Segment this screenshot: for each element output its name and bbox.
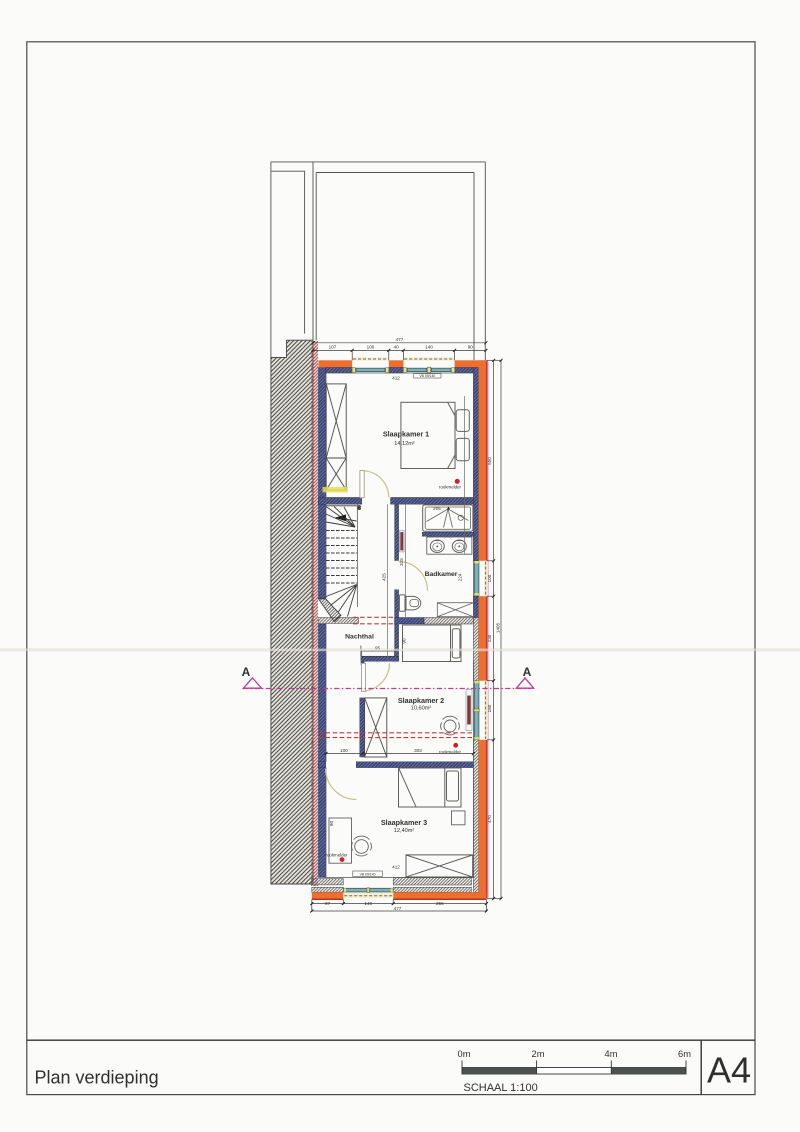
svg-text:Plan verdieping: Plan verdieping bbox=[35, 1068, 159, 1088]
svg-text:230: 230 bbox=[487, 634, 492, 642]
svg-text:90: 90 bbox=[468, 345, 474, 350]
svg-text:90: 90 bbox=[329, 821, 334, 827]
svg-text:550: 550 bbox=[487, 457, 492, 465]
svg-text:Badkamer: Badkamer bbox=[425, 571, 458, 578]
svg-text:100: 100 bbox=[367, 345, 375, 350]
svg-text:2m: 2m bbox=[532, 1049, 545, 1059]
svg-text:412: 412 bbox=[392, 865, 400, 870]
svg-text:Slaapkamer 3: Slaapkamer 3 bbox=[381, 818, 427, 827]
svg-text:477: 477 bbox=[396, 337, 404, 342]
svg-text:rookmelder: rookmelder bbox=[439, 485, 461, 490]
svg-text:0m: 0m bbox=[458, 1049, 471, 1059]
svg-text:255: 255 bbox=[436, 901, 444, 906]
svg-text:90: 90 bbox=[402, 638, 407, 644]
svg-text:205: 205 bbox=[433, 506, 441, 511]
svg-text:VB 09/140: VB 09/140 bbox=[360, 872, 376, 876]
svg-text:140: 140 bbox=[425, 345, 433, 350]
svg-text:Nachthal: Nachthal bbox=[345, 633, 374, 640]
svg-text:Slaapkamer 1: Slaapkamer 1 bbox=[383, 429, 429, 438]
svg-text:6m: 6m bbox=[678, 1049, 691, 1059]
svg-text:140: 140 bbox=[364, 901, 372, 906]
svg-text:315: 315 bbox=[399, 558, 404, 566]
svg-text:SCHAAL 1:100: SCHAAL 1:100 bbox=[464, 1082, 538, 1094]
svg-text:40: 40 bbox=[394, 345, 400, 350]
svg-text:14,12m²: 14,12m² bbox=[394, 441, 415, 447]
svg-text:412: 412 bbox=[392, 375, 400, 380]
svg-text:470: 470 bbox=[487, 815, 492, 823]
svg-text:50: 50 bbox=[358, 505, 362, 509]
svg-text:477: 477 bbox=[394, 906, 402, 911]
svg-text:A: A bbox=[523, 665, 532, 679]
svg-text:10,60m²: 10,60m² bbox=[411, 706, 432, 712]
svg-text:A: A bbox=[242, 665, 251, 679]
svg-text:12,40m²: 12,40m² bbox=[394, 828, 415, 834]
svg-text:100: 100 bbox=[340, 748, 348, 753]
svg-text:1405: 1405 bbox=[495, 622, 500, 633]
svg-text:VB 09/140: VB 09/140 bbox=[419, 374, 435, 378]
svg-text:425: 425 bbox=[381, 573, 386, 581]
svg-text:107: 107 bbox=[329, 345, 337, 350]
svg-text:100: 100 bbox=[487, 574, 492, 582]
svg-text:A4: A4 bbox=[707, 1050, 751, 1091]
svg-text:303: 303 bbox=[414, 748, 422, 753]
svg-text:224: 224 bbox=[457, 573, 462, 581]
svg-text:Slaapkamer 2: Slaapkamer 2 bbox=[398, 696, 444, 705]
svg-text:87: 87 bbox=[325, 901, 331, 906]
svg-text:160: 160 bbox=[487, 704, 492, 712]
svg-text:rookmelder: rookmelder bbox=[326, 853, 348, 858]
svg-text:4m: 4m bbox=[605, 1049, 618, 1059]
